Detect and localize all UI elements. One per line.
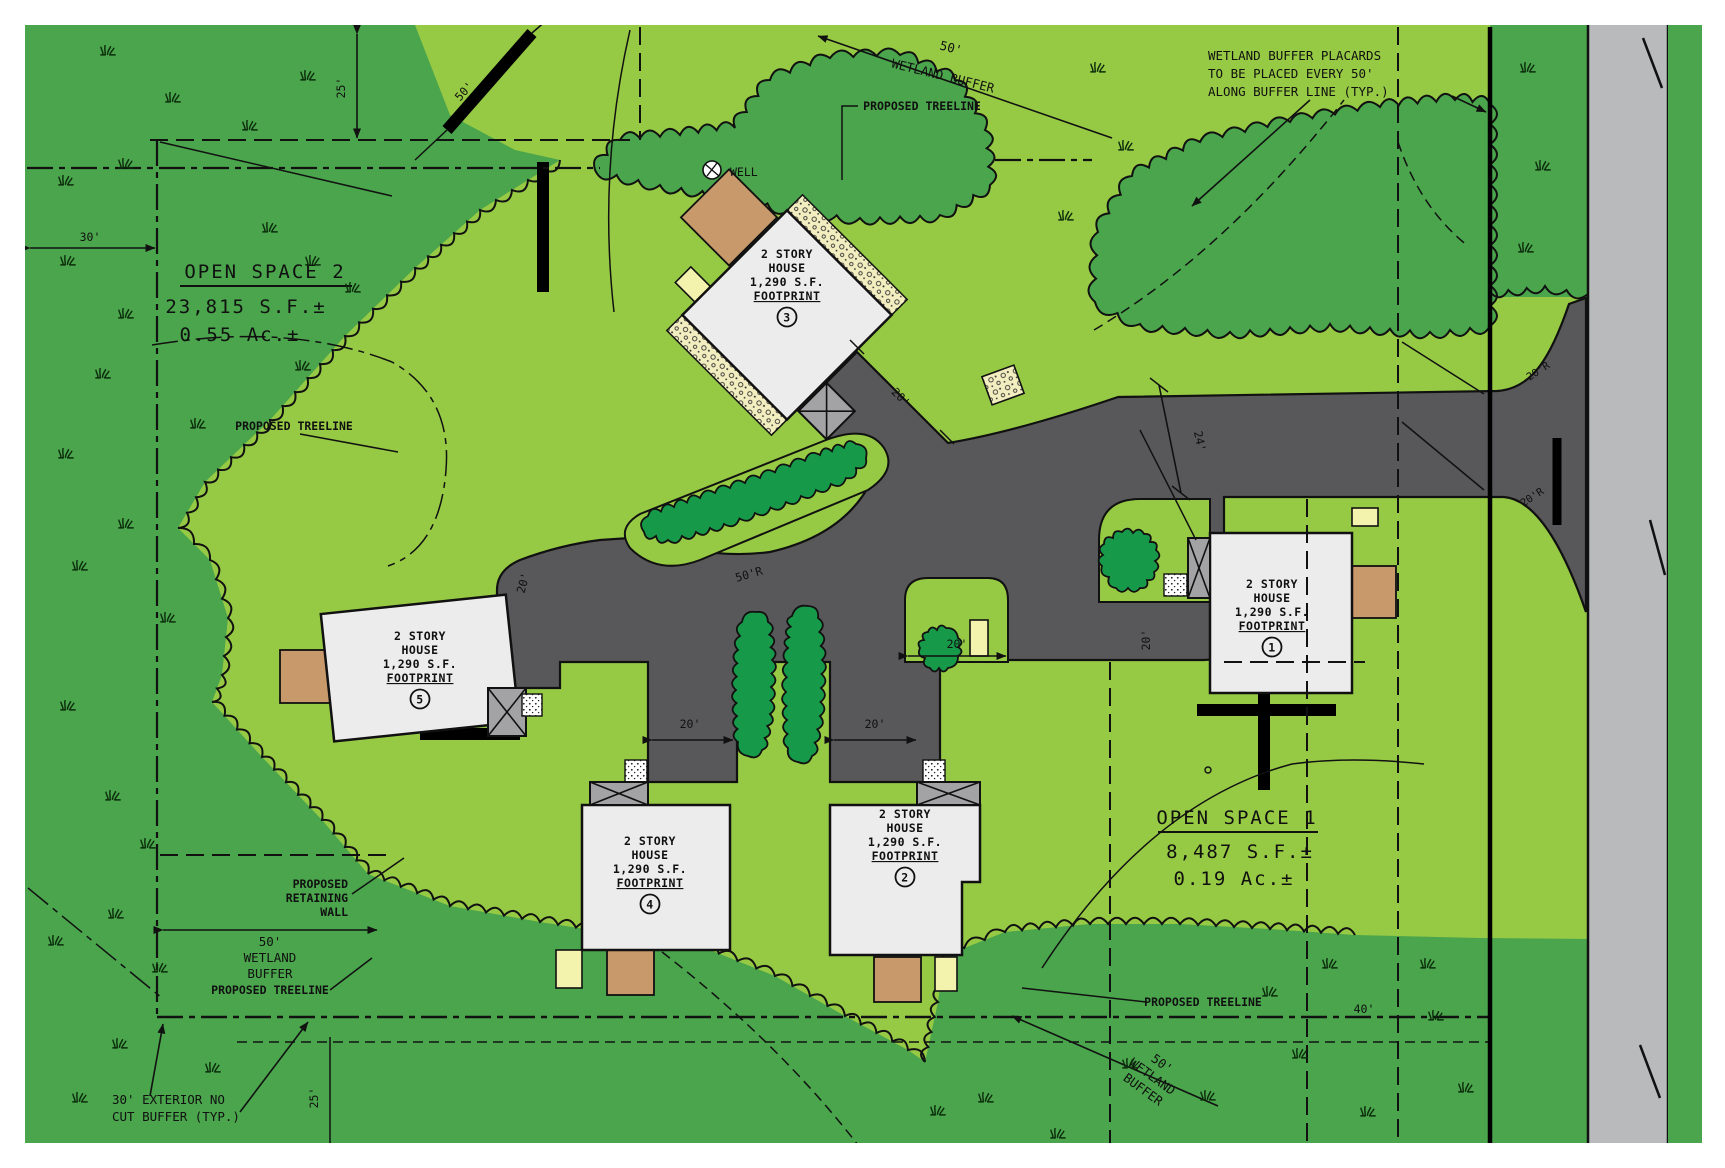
walkway-pad [923, 760, 945, 782]
svg-text:CUT BUFFER (TYP.): CUT BUFFER (TYP.) [112, 1109, 240, 1124]
open-space-2-area-sf: 23,815 S.F.± [165, 296, 326, 318]
svg-text:WETLAND: WETLAND [244, 950, 297, 965]
dim-25ft: 25' [307, 1088, 321, 1109]
svg-text:TO BE PLACED EVERY 50': TO BE PLACED EVERY 50' [1208, 66, 1374, 81]
existing-street [1588, 25, 1668, 1143]
svg-text:5: 5 [416, 693, 423, 707]
svg-text:RETAINING: RETAINING [286, 891, 348, 905]
svg-text:30' EXTERIOR NO: 30' EXTERIOR NO [112, 1092, 225, 1107]
svg-text:WETLAND BUFFER PLACARDS: WETLAND BUFFER PLACARDS [1208, 48, 1381, 63]
svg-text:PROPOSED: PROPOSED [293, 877, 348, 891]
svg-text:3: 3 [783, 311, 790, 325]
proposed-treeline-label: PROPOSED TREELINE [235, 419, 353, 433]
svg-text:1,290 S.F.: 1,290 S.F. [1235, 605, 1309, 619]
house-2-pad [935, 957, 957, 991]
shrub [732, 612, 776, 758]
svg-text:HOUSE: HOUSE [401, 643, 438, 657]
svg-text:ALONG BUFFER LINE (TYP.): ALONG BUFFER LINE (TYP.) [1208, 84, 1389, 99]
dim-30ft: 30' [80, 230, 101, 244]
dim-20ft: 20' [680, 717, 701, 731]
svg-text:BUFFER: BUFFER [247, 966, 293, 981]
svg-text:HOUSE: HOUSE [631, 848, 668, 862]
svg-text:2: 2 [901, 871, 908, 885]
house-1-pad [1352, 508, 1378, 526]
svg-text:FOOTPRINT: FOOTPRINT [872, 849, 939, 863]
site-plan-sheet: OPEN SPACE 2 23,815 S.F.± 0.55 Ac.± OPEN… [0, 0, 1725, 1168]
svg-text:1,290 S.F.: 1,290 S.F. [613, 862, 687, 876]
placards-note: WETLAND BUFFER PLACARDS TO BE PLACED EVE… [1208, 48, 1389, 99]
house-4-porch [590, 782, 648, 805]
walkway-pad [522, 694, 542, 716]
house-1-porch [1188, 538, 1210, 598]
shrub [782, 606, 826, 764]
svg-text:WALL: WALL [320, 905, 348, 919]
svg-text:50': 50' [259, 934, 282, 949]
dim-20ft: 20' [947, 637, 968, 651]
dim-40ft: 40' [1354, 1002, 1375, 1016]
house-2-patio [874, 957, 921, 1002]
svg-text:HOUSE: HOUSE [886, 821, 923, 835]
svg-text:1: 1 [1268, 641, 1275, 655]
open-space-2-title: OPEN SPACE 2 [184, 261, 345, 283]
dim-25ft: 25' [334, 78, 348, 99]
svg-text:FOOTPRINT: FOOTPRINT [617, 876, 684, 890]
proposed-treeline-label: PROPOSED TREELINE [863, 99, 981, 113]
house-4-patio [607, 950, 654, 995]
svg-text:2 STORY: 2 STORY [624, 834, 676, 848]
svg-text:2 STORY: 2 STORY [761, 247, 813, 261]
open-space-1-area-sf: 8,487 S.F.± [1166, 841, 1314, 863]
svg-text:PROPOSED TREELINE: PROPOSED TREELINE [211, 983, 329, 997]
dim-20ft: 20' [865, 717, 886, 731]
svg-text:FOOTPRINT: FOOTPRINT [1239, 619, 1306, 633]
site-plan-drawing: OPEN SPACE 2 23,815 S.F.± 0.55 Ac.± OPEN… [0, 0, 1725, 1168]
svg-text:HOUSE: HOUSE [1253, 591, 1290, 605]
well-label: WELL [730, 165, 758, 179]
house-5-porch [488, 688, 526, 736]
house-2-porch [917, 782, 980, 805]
svg-text:FOOTPRINT: FOOTPRINT [387, 671, 454, 685]
walkway-pad [1164, 574, 1187, 596]
dim-20ft: 20' [1139, 630, 1153, 651]
green-strip-east-of-street [1668, 25, 1702, 1143]
svg-text:1,290 S.F.: 1,290 S.F. [750, 275, 824, 289]
svg-text:2 STORY: 2 STORY [394, 629, 446, 643]
svg-text:1,290 S.F.: 1,290 S.F. [383, 657, 457, 671]
open-space-1-label: OPEN SPACE 1 8,487 S.F.± 0.19 Ac.± [1156, 807, 1318, 890]
proposed-treeline-label: PROPOSED TREELINE [1144, 995, 1262, 1009]
svg-text:FOOTPRINT: FOOTPRINT [754, 289, 821, 303]
well-symbol [703, 161, 721, 179]
svg-text:4: 4 [646, 898, 653, 912]
house-1-patio [1352, 566, 1396, 618]
svg-text:2 STORY: 2 STORY [879, 807, 931, 821]
house-4-pad [556, 950, 582, 988]
svg-text:HOUSE: HOUSE [768, 261, 805, 275]
utility-pad [970, 620, 988, 656]
open-space-1-area-ac: 0.19 Ac.± [1174, 868, 1295, 890]
walkway-pad [625, 760, 647, 782]
open-space-2-area-ac: 0.55 Ac.± [180, 324, 301, 346]
svg-text:1,290 S.F.: 1,290 S.F. [868, 835, 942, 849]
svg-text:2 STORY: 2 STORY [1246, 577, 1298, 591]
open-space-1-title: OPEN SPACE 1 [1156, 807, 1317, 829]
